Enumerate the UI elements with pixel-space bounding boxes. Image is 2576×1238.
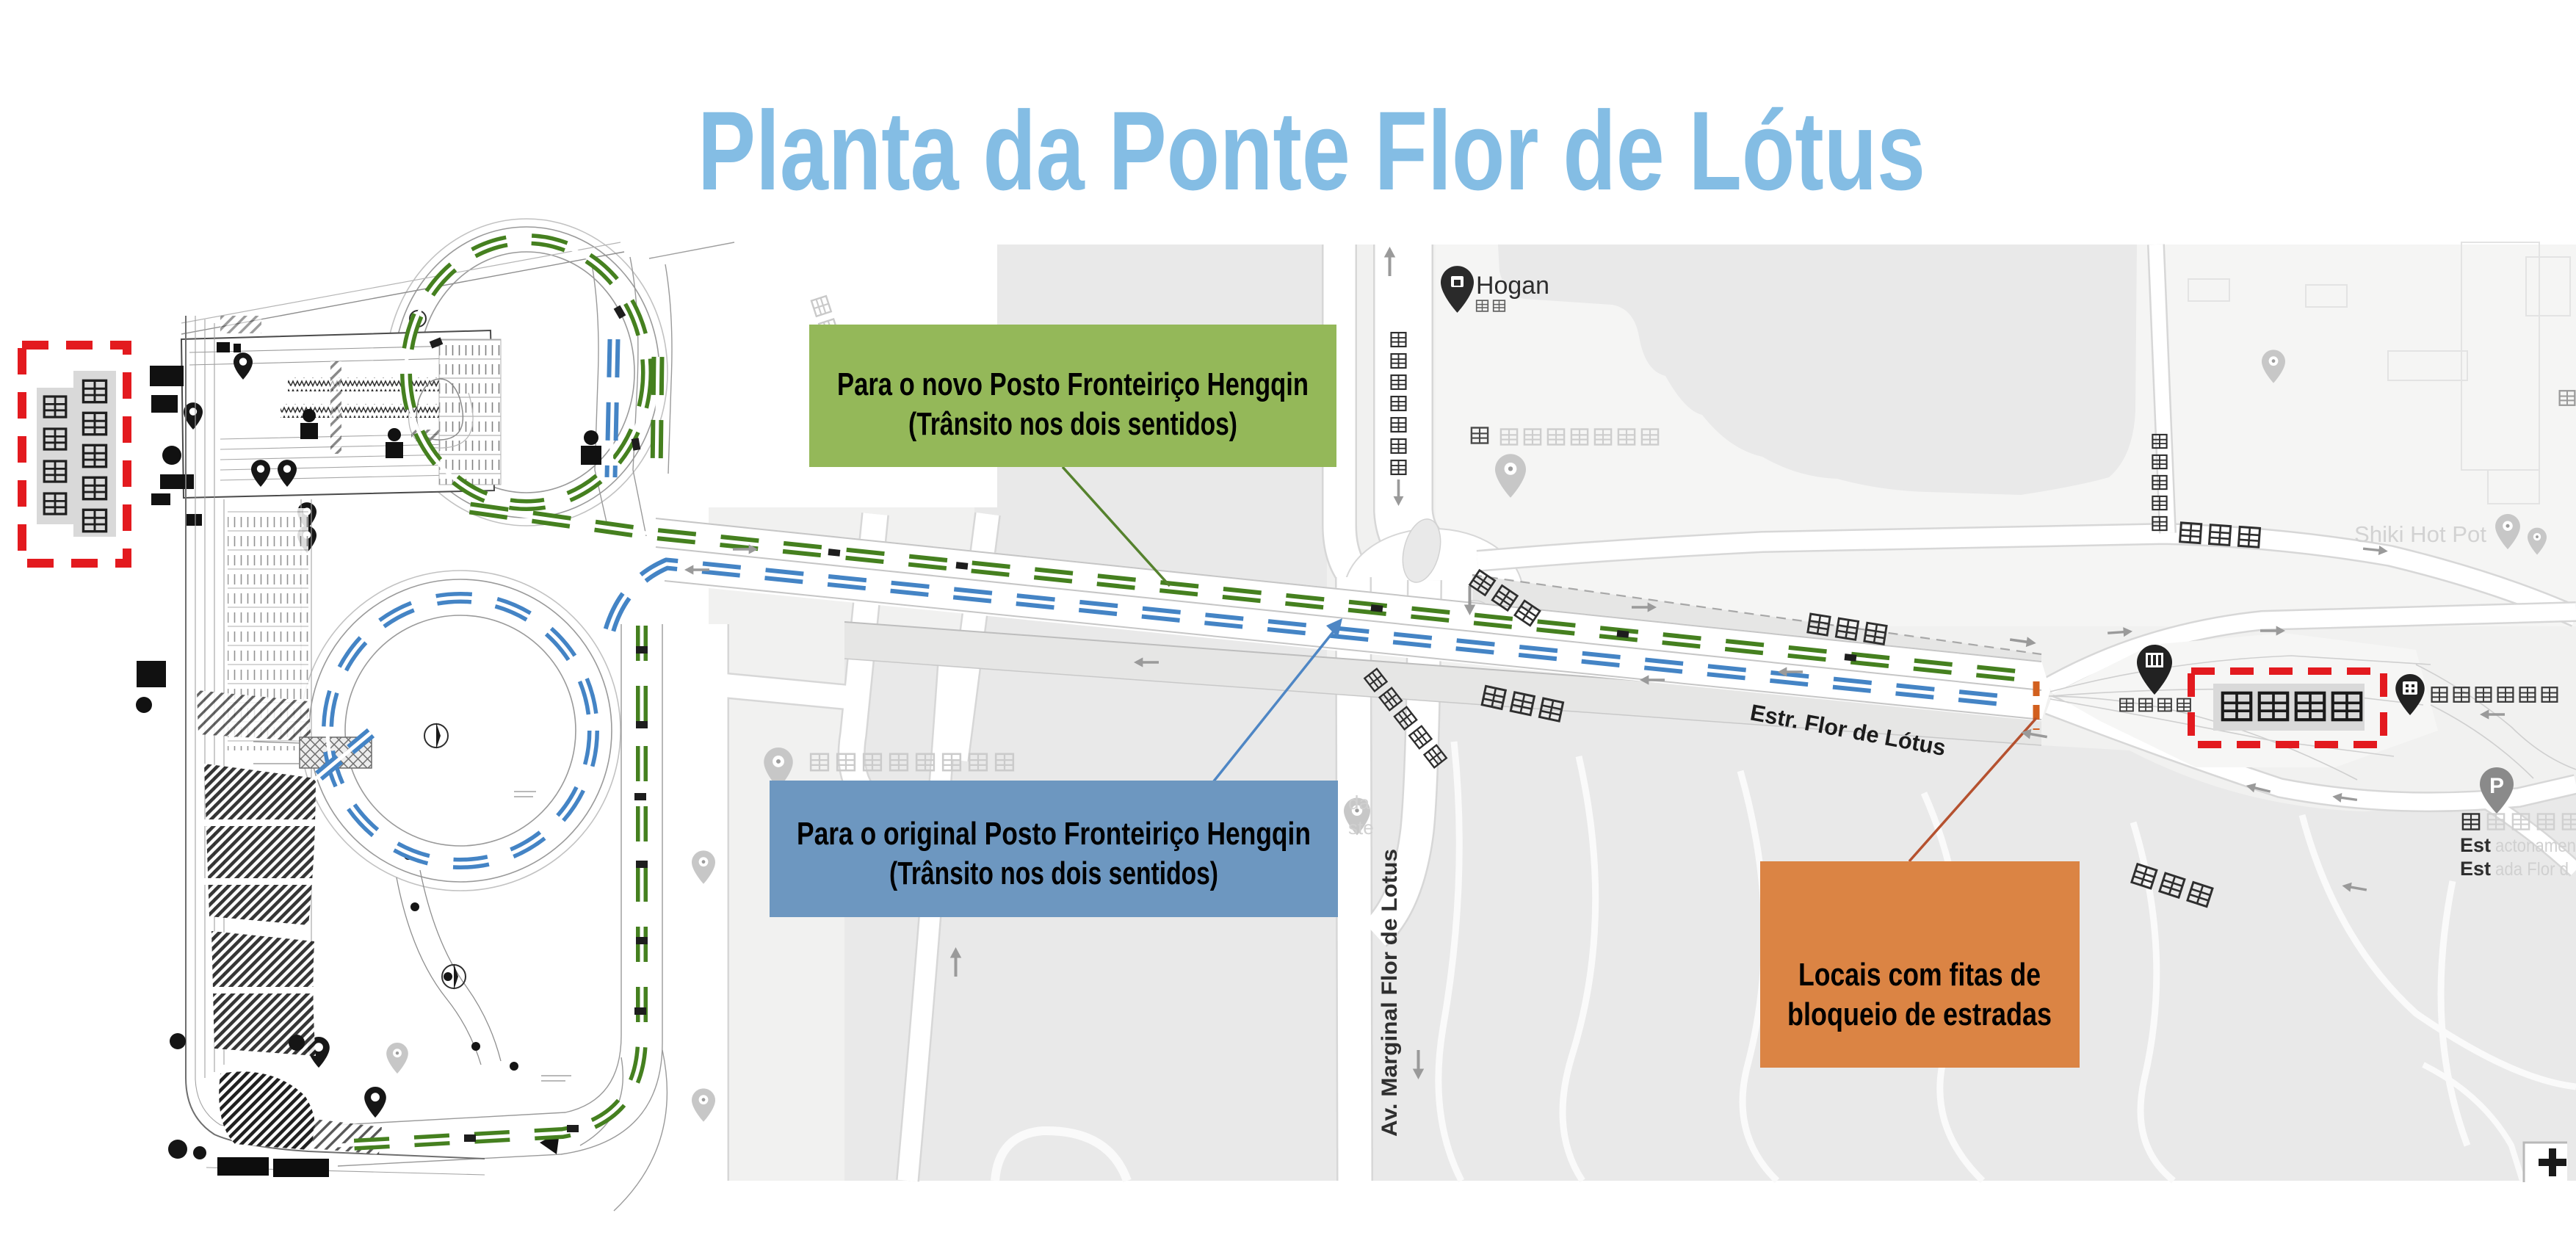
- svg-text:actonamen: actonamen: [2495, 836, 2576, 856]
- svg-text:P: P: [2489, 774, 2504, 798]
- svg-text:Para o novo Posto Fronteiriço: Para o novo Posto Fronteiriço Hengqin: [837, 366, 1309, 402]
- svg-text:Shiki Hot Pot: Shiki Hot Pot: [2354, 521, 2486, 547]
- svg-text:Hogan: Hogan: [1476, 272, 1549, 300]
- svg-text:ada Flor d: ada Flor d: [2495, 859, 2569, 880]
- svg-text:Locais com fitas de: Locais com fitas de: [1798, 957, 2041, 993]
- svg-text:Planta da Ponte Flor de Lótus: Planta da Ponte Flor de Lótus: [698, 88, 1925, 214]
- svg-text:Est: Est: [2460, 858, 2491, 880]
- svg-text:(Trânsito nos dois sentidos): (Trânsito nos dois sentidos): [908, 406, 1237, 442]
- svg-text:da: da: [1348, 792, 1370, 814]
- svg-text:Av. Marginal Flor de Lotus: Av. Marginal Flor de Lotus: [1378, 849, 1402, 1137]
- svg-text:bloqueio de estradas: bloqueio de estradas: [1787, 996, 2052, 1032]
- svg-text:Est: Est: [2460, 834, 2491, 856]
- svg-text:(Trânsito nos dois sentidos): (Trânsito nos dois sentidos): [889, 855, 1218, 891]
- svg-text:ste: ste: [1348, 817, 1374, 839]
- svg-text:Para o original Posto Fronteir: Para o original Posto Fronteiriço Hengqi…: [797, 816, 1311, 852]
